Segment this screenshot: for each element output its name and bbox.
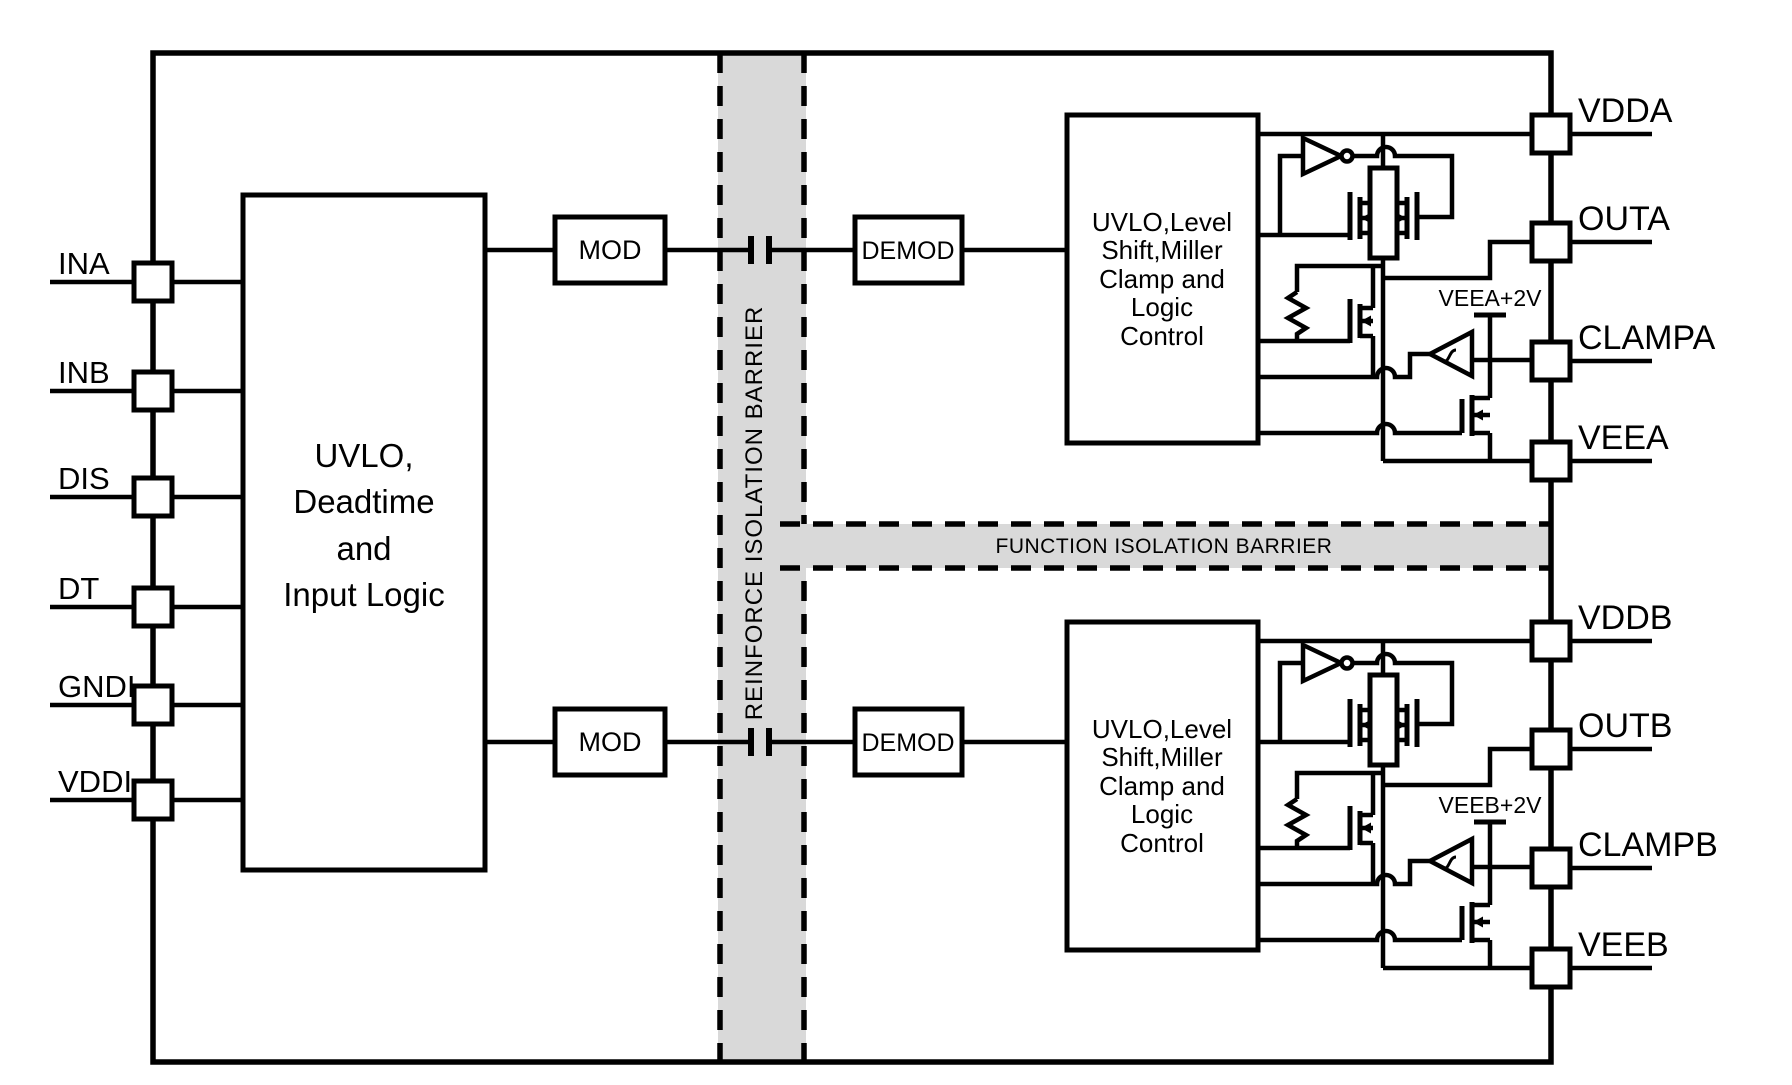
pin-dis: DIS xyxy=(50,461,243,516)
input-block-line: Input Logic xyxy=(283,576,444,613)
input-logic-block: UVLO, Deadtime and Input Logic xyxy=(243,195,485,870)
pin-outb-label: OUTB xyxy=(1578,707,1672,745)
pin-gndi-label: GNDI xyxy=(58,669,136,704)
output-block-line: Clamp and xyxy=(1099,771,1225,801)
pin-gndi: GNDI xyxy=(50,669,243,724)
output-block-line: Logic xyxy=(1131,799,1193,829)
pin-inb-label: INB xyxy=(58,355,110,390)
pin-veeb-label: VEEB xyxy=(1578,926,1669,964)
gate-driver-block-diagram: UVLO, Deadtime and Input Logic UVLO,Leve… xyxy=(0,0,1792,1085)
output-block-line: UVLO,Level xyxy=(1092,714,1232,744)
output-block-line: Control xyxy=(1120,828,1204,858)
mod-b-label: MOD xyxy=(579,727,642,757)
pin-vddi-label: VDDI xyxy=(58,764,132,799)
input-block-line: and xyxy=(336,530,391,567)
pin-dis-label: DIS xyxy=(58,461,110,496)
clamp-ref-b-label: VEEB+2V xyxy=(1439,792,1543,818)
pin-inb: INB xyxy=(50,355,243,410)
pin-ina: INA xyxy=(50,246,243,301)
diagram-canvas: UVLO, Deadtime and Input Logic UVLO,Leve… xyxy=(0,0,1792,1085)
pin-outa-label: OUTA xyxy=(1578,200,1670,238)
reinforce-isolation-barrier-label: REINFORCE ISOLATION BARRIER xyxy=(741,306,768,721)
pin-vdda-label: VDDA xyxy=(1578,92,1673,130)
input-block-line: UVLO, xyxy=(314,437,413,474)
output-block-line: Control xyxy=(1120,321,1204,351)
input-block-line: Deadtime xyxy=(293,483,434,520)
pin-dt: DT xyxy=(50,571,243,626)
pin-dt-label: DT xyxy=(58,571,99,606)
pin-ina-label: INA xyxy=(58,246,110,281)
pin-clampa-label: CLAMPA xyxy=(1578,319,1716,357)
output-block-line: Shift,Miller xyxy=(1101,742,1223,772)
clamp-ref-a-label: VEEA+2V xyxy=(1439,285,1543,311)
pin-vddi: VDDI xyxy=(50,764,243,819)
output-block-line: Shift,Miller xyxy=(1101,235,1223,265)
pin-clampb-label: CLAMPB xyxy=(1578,826,1718,864)
pin-veea-label: VEEA xyxy=(1578,419,1669,457)
output-block-line: Logic xyxy=(1131,292,1193,322)
function-isolation-barrier-label: FUNCTION ISOLATION BARRIER xyxy=(996,535,1333,558)
demod-b-label: DEMOD xyxy=(861,729,954,757)
mod-a-label: MOD xyxy=(579,235,642,265)
output-block-line: Clamp and xyxy=(1099,264,1225,294)
output-block-line: UVLO,Level xyxy=(1092,207,1232,237)
pin-clampb: CLAMPB xyxy=(1532,826,1718,887)
demod-a-label: DEMOD xyxy=(861,237,954,265)
pin-clampa: CLAMPA xyxy=(1532,319,1716,380)
pin-vddb-label: VDDB xyxy=(1578,599,1672,637)
